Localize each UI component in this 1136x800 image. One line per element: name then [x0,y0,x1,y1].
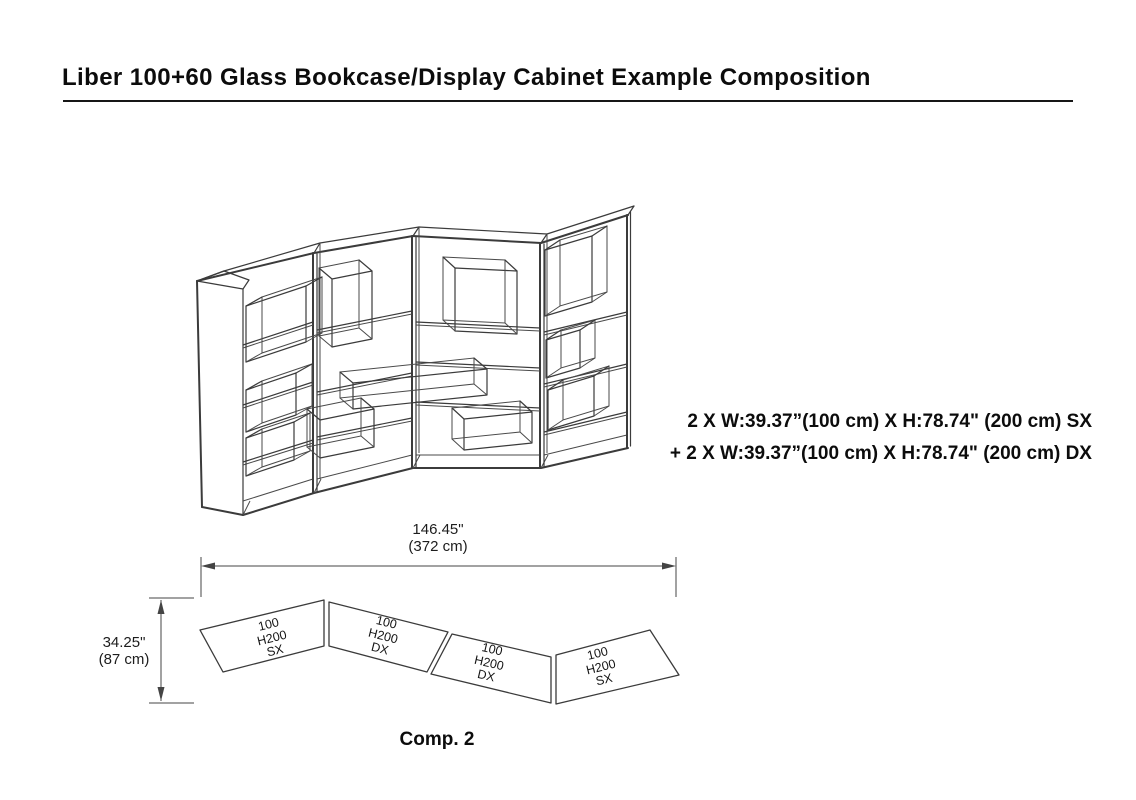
spec-line-dx: + 2 X W:39.37”(100 cm) X H:78.74" (200 c… [670,438,1092,470]
bookcase-isometric-drawing [197,206,634,515]
shelves-bay-3 [416,322,540,411]
shelves-bay-2 [317,311,412,440]
composition-caption: Comp. 2 [377,729,497,751]
depth-dimension-label: 34.25" (87 cm) [64,634,184,668]
spec-line-sx: 2 X W:39.37”(100 cm) X H:78.74" (200 cm)… [670,406,1092,438]
depth-cm: (87 cm) [64,651,184,668]
depth-inches: 34.25" [64,634,184,651]
spec-lines: 2 X W:39.37”(100 cm) X H:78.74" (200 cm)… [670,406,1092,470]
width-dimension-line [201,557,676,597]
display-box-modules [246,226,609,476]
width-cm: (372 cm) [358,538,518,555]
width-inches: 146.45" [358,521,518,538]
width-dimension-label: 146.45" (372 cm) [358,521,518,555]
